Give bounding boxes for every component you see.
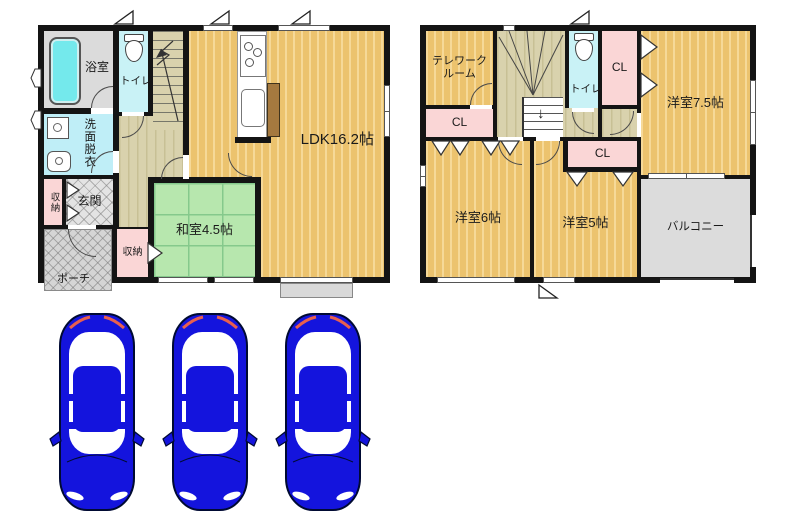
window [503, 25, 515, 31]
floorplan-canvas: LDK16.2帖 浴室 トイレ 洗面脱衣 [0, 0, 800, 529]
room-label: 洋室7.5帖 [667, 96, 724, 111]
flag-marker-icon [570, 10, 590, 25]
door-triangle-icon [432, 141, 450, 155]
closet-left: 収納 [44, 179, 62, 225]
stove-icon [240, 35, 266, 77]
room-toilet-2f: トイレ [569, 31, 598, 108]
room-label: トイレ [570, 83, 602, 95]
room-label: LDK16.2帖 [301, 131, 374, 148]
car-top-view-icon [282, 310, 364, 515]
room-label: CL [612, 61, 627, 75]
door-opening [637, 113, 641, 137]
door-triangle-icon [641, 73, 657, 97]
window [420, 165, 426, 187]
room-west-75: 洋室7.5帖 [641, 31, 750, 175]
room-label: 浴室 [85, 61, 109, 75]
balcony-railing-gap [750, 215, 758, 267]
door-triangle-icon [148, 243, 162, 263]
flag-marker-icon [210, 10, 230, 25]
window [384, 85, 390, 137]
sliding-window [648, 173, 725, 179]
door-opening [68, 225, 96, 229]
car-top-view-icon [169, 310, 251, 515]
closet-bottom: 収納 [117, 229, 148, 277]
room-label: 収納 [123, 247, 143, 259]
stairs-fan-icon [497, 31, 565, 101]
room-label: バルコニー [667, 221, 724, 234]
closet-left-2f: CL [426, 109, 493, 137]
window [203, 25, 233, 31]
door-opening [470, 105, 492, 109]
bathtub-icon [49, 37, 81, 105]
room-label: 洋室6帖 [455, 211, 501, 226]
kitchen-sink-icon [241, 89, 265, 127]
window [750, 80, 756, 145]
door-triangle-icon [641, 35, 657, 59]
room-label: 洗面脱衣 [82, 118, 95, 168]
side-window-icon [31, 111, 41, 129]
door-triangle-icon [482, 141, 500, 155]
door-opening [183, 155, 189, 179]
room-label: テレワーク [432, 55, 487, 68]
washing-machine-icon [47, 117, 69, 139]
window [214, 277, 254, 283]
toilet-icon [125, 40, 143, 62]
room-label: トイレ [120, 75, 152, 87]
toilet-icon [575, 39, 593, 61]
room-label: ルーム [443, 68, 476, 81]
door-triangle-icon [67, 182, 79, 198]
stairs-2f: ↓ [497, 31, 565, 137]
room-toilet-1f: トイレ [119, 31, 148, 112]
door-triangle-icon [613, 172, 633, 186]
washbasin-icon [47, 151, 71, 172]
closet-room5: CL [563, 141, 637, 172]
room-washitsu: 和室4.5帖 [148, 177, 261, 283]
flag-marker-icon [538, 284, 558, 299]
door-triangle-icon [67, 205, 79, 221]
door-triangle-icon [451, 141, 469, 155]
kitchen-cabinet [267, 83, 280, 137]
room-label: 洋室5帖 [562, 216, 608, 231]
wall-stub [235, 137, 271, 143]
car-top-view-icon [56, 310, 138, 515]
door-triangle-icon [567, 172, 587, 186]
balcony: バルコニー [641, 179, 750, 277]
door-opening [572, 108, 594, 112]
door-opening [122, 112, 144, 116]
side-window-icon [31, 69, 41, 87]
room-label: 玄関 [77, 195, 101, 209]
window [158, 277, 208, 283]
flag-marker-icon [114, 10, 134, 25]
room-label: CL [595, 147, 610, 161]
stairs-1f [153, 31, 183, 130]
window [278, 25, 330, 31]
room-label: 和室4.5帖 [176, 223, 233, 238]
room-label: 収納 [48, 192, 59, 213]
balcony-railing-gap [660, 278, 734, 285]
room-label: ポーチ [57, 273, 90, 286]
door-opening [91, 108, 113, 114]
door-opening [536, 137, 560, 141]
stairs-arrow-icon [153, 31, 183, 130]
stairs-down-arrow-icon: ↓ [537, 105, 545, 122]
terrace-step [280, 283, 353, 298]
closet-top: CL [602, 31, 637, 105]
flag-marker-icon [291, 10, 311, 25]
window [543, 277, 575, 283]
floor1-plan: LDK16.2帖 浴室 トイレ 洗面脱衣 [38, 25, 390, 283]
window [437, 277, 515, 283]
door-triangle-icon [501, 141, 519, 155]
room-label: CL [452, 116, 467, 130]
floor2-plan: テレワーク ルーム ↓ トイレ CL [420, 25, 756, 283]
door-opening [113, 151, 119, 173]
